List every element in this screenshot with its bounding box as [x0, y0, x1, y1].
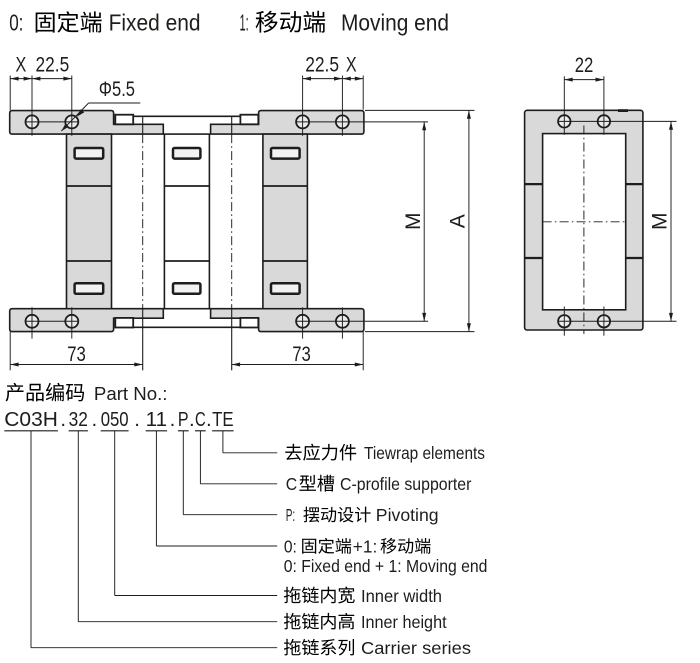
svg-text:22.5: 22.5: [36, 54, 70, 77]
svg-text:Carrier series: Carrier series: [361, 638, 471, 658]
svg-text:A: A: [446, 214, 469, 228]
svg-text:TE: TE: [212, 408, 234, 431]
svg-text:11: 11: [146, 408, 167, 431]
svg-text:P: P: [178, 408, 189, 431]
svg-text:Tiewrap elements: Tiewrap elements: [364, 443, 485, 463]
svg-text:M: M: [402, 213, 425, 231]
svg-text:Moving end: Moving end: [341, 10, 449, 36]
svg-text:Inner height: Inner height: [361, 612, 447, 632]
svg-text:.: .: [170, 408, 176, 431]
svg-text:C-profile supporter: C-profile supporter: [340, 474, 472, 494]
svg-text:P:: P:: [286, 505, 296, 525]
svg-text:Part No.:: Part No.:: [94, 383, 168, 404]
svg-text:0: Fixed end + 1: Moving end: 0: Fixed end + 1: Moving end: [284, 556, 488, 576]
svg-text:22.5: 22.5: [305, 54, 339, 77]
svg-text:X: X: [16, 53, 27, 76]
svg-text:C: C: [286, 474, 298, 494]
svg-text:Φ5.5: Φ5.5: [99, 78, 135, 101]
svg-text:C03H: C03H: [4, 408, 58, 431]
svg-text:Inner width: Inner width: [361, 586, 442, 606]
svg-text:0:: 0:: [284, 536, 297, 556]
svg-text:73: 73: [292, 343, 311, 366]
svg-text:X: X: [346, 53, 357, 76]
svg-text:22: 22: [575, 54, 594, 77]
svg-text:.: .: [91, 408, 97, 431]
svg-text:.: .: [60, 408, 66, 431]
svg-text:32: 32: [69, 408, 88, 431]
svg-text:050: 050: [101, 408, 129, 431]
svg-text:Fixed end: Fixed end: [109, 10, 201, 36]
svg-text:M: M: [649, 213, 672, 231]
svg-text:1:: 1:: [240, 10, 249, 36]
svg-text:73: 73: [67, 343, 86, 366]
svg-text:.: .: [206, 408, 212, 431]
svg-text:.: .: [189, 408, 195, 431]
svg-text:.: .: [134, 408, 140, 431]
svg-text:Pivoting: Pivoting: [376, 505, 439, 525]
svg-text:0:: 0:: [9, 10, 23, 36]
svg-text:+1:: +1:: [353, 536, 378, 556]
svg-text:C: C: [195, 408, 206, 431]
